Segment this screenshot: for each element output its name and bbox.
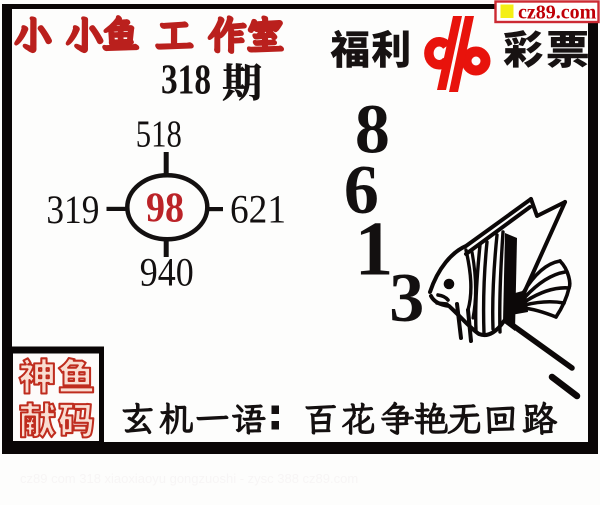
svg-text:1: 1 <box>355 206 394 292</box>
svg-text:319: 319 <box>46 187 99 232</box>
svg-text:518: 518 <box>136 114 182 156</box>
svg-text:621: 621 <box>230 187 286 232</box>
svg-text:318: 318 <box>161 58 211 104</box>
svg-text:cz89 com 318 xiaoxiaoyu gongzu: cz89 com 318 xiaoxiaoyu gongzuoshi - zys… <box>20 471 358 486</box>
svg-text:98: 98 <box>146 186 184 232</box>
svg-text:3: 3 <box>389 260 424 337</box>
svg-text:cz89.com: cz89.com <box>518 2 597 24</box>
svg-text:940: 940 <box>140 250 194 295</box>
